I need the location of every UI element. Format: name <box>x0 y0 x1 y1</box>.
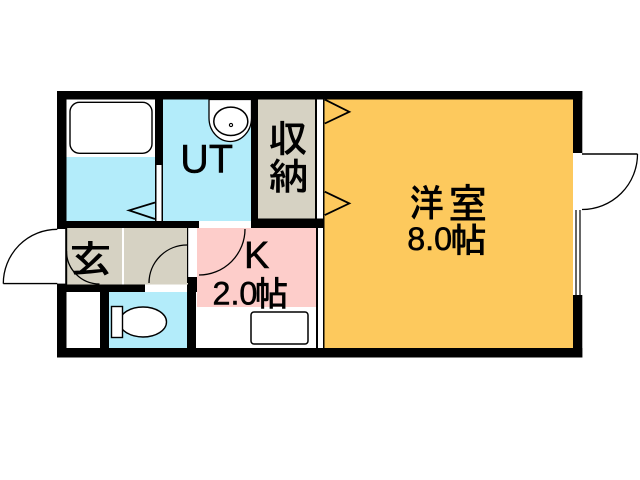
svg-text:8.0: 8.0 <box>407 221 452 257</box>
svg-text:2.0: 2.0 <box>213 275 258 311</box>
svg-text:UT: UT <box>180 138 233 182</box>
svg-text:K: K <box>244 235 269 277</box>
